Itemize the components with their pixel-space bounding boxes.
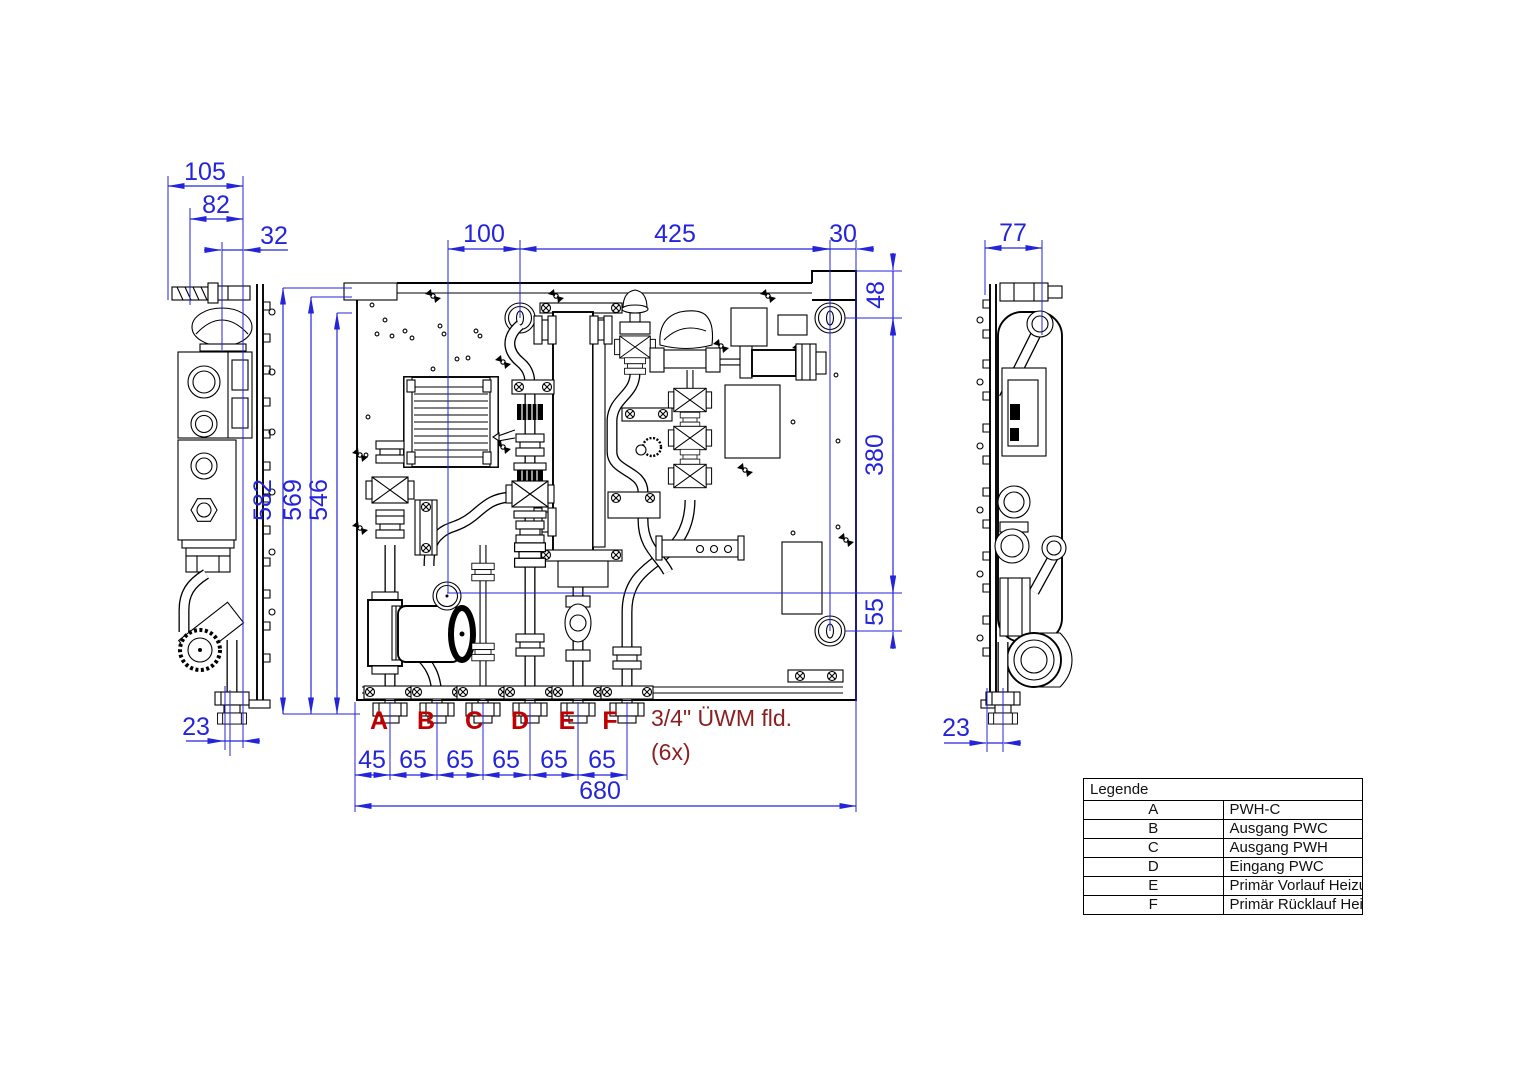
dim-right-view-77: 77 [985, 219, 1042, 248]
drawing-canvas: 105 82 32 23 100 425 [0, 0, 1528, 1080]
dim-text: 105 [184, 158, 226, 186]
dim-text: 65 [540, 746, 568, 774]
label-b: B [417, 707, 435, 735]
legend-key: B [1084, 820, 1224, 839]
legend-key: A [1084, 801, 1224, 820]
dim-front-top-425: 425 [520, 220, 830, 249]
legend-row: BAusgang PWC [1084, 820, 1363, 839]
valve-cluster [608, 290, 720, 518]
dim-text: 23 [942, 714, 970, 742]
din-rail [656, 536, 744, 560]
legend-label: Eingang PWC [1223, 858, 1363, 877]
dim-text: 32 [260, 222, 288, 250]
legend-label: Ausgang PWC [1223, 820, 1363, 839]
dim-front-left-546: 546 [305, 313, 337, 714]
cold-water-riser [493, 380, 554, 656]
legend-label: Primär Rücklauf Heizung [1223, 896, 1363, 915]
legend-key: F [1084, 896, 1224, 915]
dim-left-view-105: 105 [168, 158, 243, 186]
dim-front-top-30: 30 [812, 220, 874, 249]
dim-text: 569 [279, 479, 307, 521]
dim-bottom-680: 680 [355, 777, 856, 806]
label-a: A [370, 707, 388, 735]
fitting-note-line2: (6x) [651, 739, 691, 765]
dim-left-view-32: 32 [204, 222, 288, 250]
ball-valve [565, 596, 591, 661]
panel-cutout [731, 308, 767, 346]
front-view [344, 271, 856, 723]
dim-text: 65 [446, 746, 474, 774]
label-f: F [602, 707, 617, 735]
legend-row: APWH-C [1084, 801, 1363, 820]
dim-text: 23 [182, 713, 210, 741]
label-c: C [465, 707, 483, 735]
dim-text: 425 [654, 220, 696, 248]
legend-title: Legende [1084, 779, 1363, 801]
technical-drawing-page: 105 82 32 23 100 425 [0, 0, 1528, 1080]
legend-row: DEingang PWC [1084, 858, 1363, 877]
dim-front-top-100: 100 [448, 220, 520, 249]
panel-cutout [725, 385, 780, 458]
dim-left-view-82: 82 [190, 191, 243, 219]
legend-row: CAusgang PWH [1084, 839, 1363, 858]
dim-text: 582 [249, 479, 277, 521]
legend-label: Primär Vorlauf Heizung [1223, 877, 1363, 896]
fitting-note-line1: 3/4" ÜWM fld. [651, 705, 792, 731]
dim-text: 100 [463, 220, 505, 248]
legend-row: FPrimär Rücklauf Heizung [1084, 896, 1363, 915]
dim-front-right-55: 55 [861, 575, 893, 649]
controller-box [404, 377, 498, 467]
dim-text: 65 [492, 746, 520, 774]
legend-table: Legende APWH-C BAusgang PWC CAusgang PWH… [1083, 778, 1363, 915]
legend-label: Ausgang PWH [1223, 839, 1363, 858]
dim-front-right-48: 48 [862, 253, 893, 336]
dim-front-right-380: 380 [861, 318, 893, 593]
dim-bottom-chain: 45 65 65 65 65 65 [355, 746, 627, 775]
dim-text: 30 [829, 220, 857, 248]
dim-text: 77 [999, 219, 1027, 247]
dim-text: 546 [305, 479, 333, 521]
legend-row: EPrimär Vorlauf Heizung [1084, 877, 1363, 896]
dim-text: 380 [861, 434, 889, 476]
legend-key: C [1084, 839, 1224, 858]
dim-text: 680 [579, 777, 621, 805]
dim-text: 48 [862, 281, 890, 309]
label-d: D [511, 707, 529, 735]
dim-text: 55 [861, 598, 889, 626]
right-side-view [977, 283, 1072, 724]
label-e: E [559, 707, 576, 735]
dim-text: 65 [399, 746, 427, 774]
dim-text: 82 [202, 191, 230, 219]
dim-front-left-582: 582 [249, 288, 283, 714]
dim-text: 45 [358, 746, 386, 774]
panel-cutout [782, 542, 822, 614]
pump-assembly [366, 441, 473, 674]
dim-text: 65 [588, 746, 616, 774]
panel-cutout [778, 315, 807, 335]
shutoff-valve [740, 344, 826, 380]
legend-label: PWH-C [1223, 801, 1363, 820]
legend-key: D [1084, 858, 1224, 877]
legend-key: E [1084, 877, 1224, 896]
